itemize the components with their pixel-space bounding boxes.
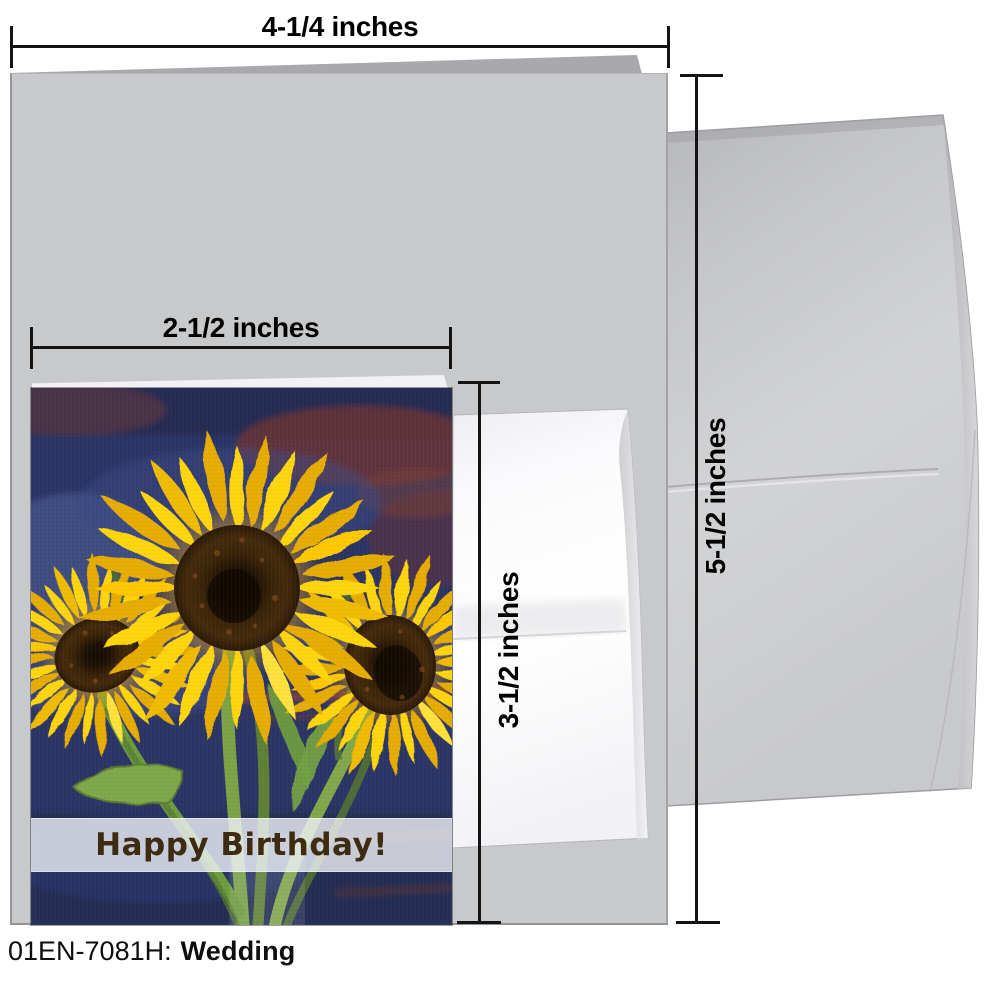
small-width-dimension-line (30, 346, 452, 349)
greeting-text: Happy Birthday! (31, 819, 452, 871)
large-height-dimension-line (695, 74, 698, 924)
small-card-back-pages (32, 375, 448, 389)
large-width-right-tick (667, 26, 670, 68)
large-width-left-tick (10, 26, 13, 68)
small-width-right-tick (449, 327, 452, 369)
small-card-height-label: 3-1/2 inches (494, 565, 524, 735)
small-height-dimension-line (478, 381, 481, 924)
small-card-width-label: 2-1/2 inches (30, 312, 452, 344)
small-height-bottom-bar (457, 921, 501, 924)
large-card-width-label: 4-1/4 inches (10, 11, 670, 43)
product-spec-diagram: 4-1/4 inches 5-1/2 inches 2-1/2 inches (0, 0, 984, 984)
small-card: Happy Birthday! (31, 375, 452, 925)
large-card-height-label: 5-1/2 inches (701, 411, 731, 581)
caption-sku: 01EN-7081H: (8, 936, 172, 966)
large-height-top-bar (680, 74, 723, 77)
large-width-dimension-line (10, 45, 670, 48)
envelope-small (440, 365, 655, 855)
caption: 01EN-7081H:Wedding (8, 936, 296, 967)
small-height-top-bar (458, 381, 500, 384)
large-height-bottom-bar (676, 921, 720, 924)
sunflower-painting: Happy Birthday! (31, 388, 452, 925)
large-card-back-fold (10, 55, 642, 74)
caption-category: Wedding (181, 936, 296, 966)
greeting-band: Happy Birthday! (31, 818, 452, 872)
small-width-left-tick (30, 327, 33, 369)
